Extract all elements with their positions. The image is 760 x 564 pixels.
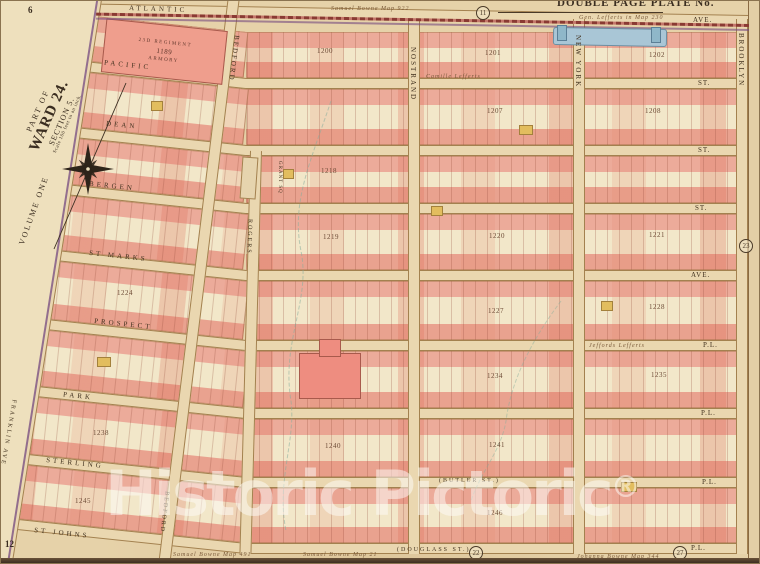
block-number: 1246: [487, 509, 503, 517]
label-new-york-ave: NEW YORK: [574, 35, 582, 88]
block-number: 1207: [487, 107, 503, 115]
institution-building: [299, 353, 361, 399]
frame-building: [519, 125, 533, 135]
label-nostrand-ave: NOSTRAND: [409, 47, 417, 101]
header-note-right: Gen. Lefferts in Map 230: [579, 15, 664, 21]
street-park-pl: [241, 408, 749, 419]
block-number: 1224: [117, 289, 133, 297]
page-bottom-edge: [1, 558, 760, 564]
frame-building: [151, 101, 163, 111]
frame-building: [601, 301, 613, 311]
block-number: 1228: [649, 303, 665, 311]
city-block-row: [246, 89, 749, 145]
suffix-atlantic: AVE.: [693, 16, 712, 24]
street-prospect-pl: [241, 340, 749, 351]
corner-ref-bottom-left: 12: [5, 539, 14, 549]
map-margin-right: [748, 1, 760, 564]
suffix-st-marks: AVE.: [691, 271, 710, 279]
avenue-brooklyn: [736, 19, 748, 554]
label-grant-sq: GRANT SQ: [277, 161, 282, 194]
frame-building: [97, 357, 111, 367]
street-pacific-st: [241, 78, 749, 89]
block-number: 1221: [649, 231, 665, 239]
institution-building-wing: [319, 339, 341, 357]
frame-building: [431, 206, 443, 216]
plate-marker-23: 23: [739, 239, 753, 253]
railroad-cut-notch: [557, 25, 567, 41]
block-number: 1218: [321, 167, 337, 175]
plate-marker-11: 11: [476, 6, 490, 20]
armory-block-number: 1189: [156, 47, 172, 57]
suffix-dean: ST.: [698, 146, 710, 154]
block-number: 1241: [489, 441, 505, 449]
label-douglass-st: (DOUGLASS ST.): [397, 547, 471, 553]
street-bergen-st: [241, 203, 749, 214]
block-number: 1202: [649, 51, 665, 59]
atlas-map-plate: 23D REGIMENT 1189 ARMORY PART OF WARD 24…: [0, 0, 760, 564]
suffix-prospect: P.L.: [703, 341, 718, 349]
block-number: 1200: [317, 47, 333, 55]
suffix-bergen: ST.: [695, 204, 707, 212]
block-number: 1235: [651, 371, 667, 379]
suffix-sterling: P.L.: [702, 478, 717, 486]
suffix-pacific: ST.: [698, 79, 710, 87]
label-butler-st: (BUTLER ST.): [439, 478, 500, 484]
block-number: 1245: [75, 497, 91, 505]
label-brooklyn-ave: BROOKLYN: [737, 33, 745, 87]
block-number: 1208: [645, 107, 661, 115]
block-number: 1227: [488, 307, 504, 315]
railroad-open-cut: [553, 27, 667, 47]
map-note-lefferts-1: Camille Lefferts: [426, 74, 481, 80]
plate-title: DOUBLE PAGE PLATE No.: [557, 0, 715, 9]
block-number: 1219: [323, 233, 339, 241]
block-number: 1240: [325, 442, 341, 450]
map-note-lefferts-2: Jeffords Lefferts: [589, 343, 645, 349]
avenue-new-york: [573, 19, 585, 554]
grant-square: [240, 156, 259, 199]
railroad-cut-notch: [651, 27, 661, 43]
street-st-marks-ave: [241, 270, 749, 281]
suffix-park: P.L.: [701, 409, 716, 417]
armory-label2: ARMORY: [148, 56, 179, 64]
block-number: 1234: [487, 372, 503, 380]
frame-building: [621, 482, 637, 492]
block-number: 1238: [93, 429, 109, 437]
block-number: 1220: [489, 232, 505, 240]
street-dean-st: [241, 145, 749, 156]
label-rogers-ave: ROGERS: [245, 219, 252, 255]
city-block-row: [246, 156, 749, 203]
suffix-st-johns: P.L.: [691, 544, 706, 552]
frame-building: [283, 169, 294, 179]
city-block-row: [246, 214, 749, 270]
corner-ref-top-left: 6: [28, 5, 33, 15]
block-number: 1201: [485, 49, 501, 57]
header-note-left: Samuel Bowne Map 922: [331, 6, 410, 12]
header-rule: [498, 12, 663, 13]
